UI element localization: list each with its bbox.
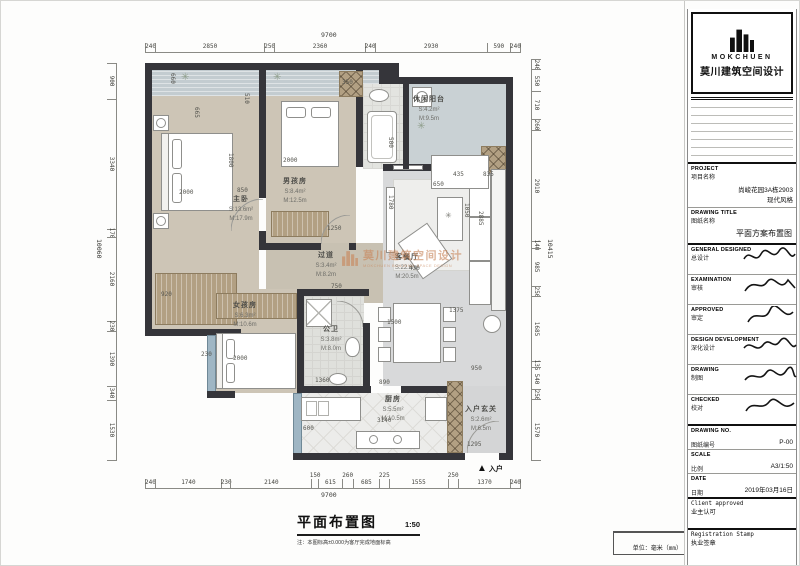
signature — [740, 366, 798, 386]
dim-chain-top: 240 2850 250 2360 240 2930 590 240 — [145, 43, 521, 53]
ruled-lines — [691, 97, 793, 162]
date-section: DATE 日期 2019年03月16日 — [688, 473, 796, 497]
dim-label: 2000 — [179, 189, 193, 196]
logo-building-icon — [727, 28, 757, 52]
pillow — [226, 363, 235, 383]
dim-label: 950 — [471, 365, 482, 372]
dim-label: 650 — [433, 181, 444, 188]
room-label-leisure-balcony: 休闲阳台 S:4.2m² M:9.5m — [405, 95, 453, 124]
dining-chair — [443, 347, 456, 362]
dim-label: 1800 — [227, 153, 234, 167]
dim-chain-left: 900 3340 170 2160 230 1390 340 1530 — [107, 63, 117, 461]
dining-chair — [378, 327, 391, 342]
signature — [740, 246, 798, 266]
wall — [379, 63, 399, 84]
dim-label: 510 — [243, 93, 250, 104]
pillow — [172, 173, 182, 203]
wall — [145, 63, 397, 70]
kitchen-island — [356, 431, 420, 449]
dim-label: 890 — [379, 379, 390, 386]
dim-chain-right: 240 550 710 260 2910 140 985 250 1685 13… — [531, 59, 541, 461]
door-arc — [337, 301, 363, 327]
watermark: 莫川建筑空间设计 MOKCHUEN BUILDING SPACE DESIGN — [341, 247, 463, 268]
sign-row-general-designed: GENERAL DESIGNED 总设计 — [688, 243, 796, 274]
plan-note: 注：本图标高±0.000为客厅完成地面标高 — [297, 539, 420, 546]
signature — [740, 276, 798, 296]
logo-text-zh: 莫川建筑空间设计 — [700, 63, 784, 78]
dim-label: 1500 — [387, 319, 401, 326]
units-box: 单位：毫米（mm） — [613, 531, 685, 555]
project-section: PROJECT 项目名称 尚峻花园3A栋2903 现代风格 — [688, 162, 796, 207]
room-label-boy: 男孩房 S:8.4m² M:12.5m — [271, 177, 319, 206]
wall — [207, 391, 235, 398]
watermark-text-zh: 莫川建筑空间设计 — [363, 247, 463, 263]
room-label-entry-foyer: 入户玄关 S:2.6m² M:6.5m — [457, 405, 505, 434]
kitchen-sink — [318, 401, 329, 416]
table-plant-icon: ✳ — [445, 211, 452, 220]
room-label-master: 主卧 S:13.6m² M:17.9m — [217, 195, 265, 224]
shower — [306, 299, 332, 327]
sofa-seat — [469, 261, 491, 305]
wall — [297, 289, 304, 393]
dim-label: 350 — [342, 79, 353, 86]
washbasin — [369, 89, 389, 102]
signature — [740, 336, 798, 356]
watermark-logo-icon — [341, 250, 359, 266]
dim-label: 1050 — [463, 203, 470, 217]
drawing-sheet: ✳ ✳ ✳ ✳ — [0, 0, 800, 566]
drawing-title-value: 平面方案布置图 — [691, 225, 793, 240]
dim-label: 1250 — [327, 225, 341, 232]
dining-table — [393, 303, 441, 363]
dim-label: 500 — [387, 137, 394, 148]
dim-total-top: 9700 — [321, 31, 337, 39]
drawing-footer-title: 平面布置图 1:50 注：本图标高±0.000为客厅完成地面标高 — [297, 512, 420, 546]
wall — [297, 289, 369, 296]
bed-headboard — [161, 133, 169, 211]
scale-value: A3/1:50 — [771, 463, 793, 470]
wall — [297, 386, 371, 393]
sign-row-approved: APPROVED 审定 — [688, 304, 796, 334]
arrow-up-icon: ▲ — [477, 464, 487, 474]
kitchen-sink — [306, 401, 317, 416]
sign-row-drawing: DRAWING 制图 — [688, 364, 796, 394]
drawing-no-value: P-00 — [779, 439, 793, 446]
sofa-back — [491, 169, 506, 311]
drawing-no-section: DRAWING NO. 图纸编号 P-00 — [688, 424, 796, 449]
title-block: MOKCHUEN 莫川建筑空间设计 PROJECT 项目名称 尚峻花园3A栋29… — [687, 9, 797, 566]
dim-label: 1375 — [449, 307, 463, 314]
registration-stamp-section: Registration Stamp 执业签章 — [688, 528, 796, 566]
dim-label: 750 — [331, 283, 342, 290]
logo-text-en: MOKCHUEN — [711, 54, 772, 61]
side-table — [483, 315, 501, 333]
client-approved-section: Client approved 业主认可 — [688, 497, 796, 528]
dim-label: 835 — [483, 171, 494, 178]
date-value: 2019年03月16日 — [745, 484, 793, 494]
wall — [145, 63, 152, 336]
sign-row-examination: EXAMINATION 审核 — [688, 274, 796, 304]
dining-chair — [443, 327, 456, 342]
entry-label: 入户 — [489, 464, 503, 474]
fridge — [425, 397, 447, 421]
pillow — [286, 107, 306, 118]
lamp-icon — [156, 118, 166, 128]
dim-label: 1360 — [315, 377, 329, 384]
plan-scale: 1:50 — [405, 520, 420, 529]
wall — [293, 453, 465, 460]
bed-headboard — [216, 333, 223, 389]
drawing-title-section: DRAWING TITLE 图纸名称 平面方案布置图 — [688, 207, 796, 243]
pillow — [311, 107, 331, 118]
dim-label: 850 — [237, 187, 248, 194]
sign-row-checked: CHECKED 校对 — [688, 394, 796, 424]
sign-row-design-development: DESIGN DEVELOPMENT 深化设计 — [688, 334, 796, 364]
dim-label: 1780 — [387, 195, 394, 209]
lamp-icon — [156, 216, 166, 226]
dim-total-bottom: 9700 — [321, 491, 337, 499]
washbasin — [329, 373, 347, 385]
dim-label: 1295 — [467, 441, 481, 448]
signature — [740, 396, 798, 416]
entry-arrow: ▲ 入户 — [477, 464, 503, 474]
stove-burner — [369, 435, 378, 444]
wall — [259, 243, 321, 250]
dim-total-left: 10060 — [95, 239, 103, 259]
dim-total-right: 10415 — [546, 239, 554, 259]
watermark-text-en: MOKCHUEN BUILDING SPACE DESIGN — [363, 263, 463, 268]
dim-label: 230 — [201, 351, 212, 358]
dim-label: 2000 — [233, 355, 247, 362]
wall — [506, 77, 513, 460]
dim-label: 600 — [303, 425, 314, 432]
wall — [259, 68, 266, 198]
divider — [684, 1, 685, 566]
dim-label: 3140 — [377, 417, 391, 424]
plant-icon: ✳ — [181, 72, 189, 83]
dim-label: 920 — [161, 291, 172, 298]
signature — [740, 306, 798, 326]
dim-chain-bottom: 240 1740 230 2140 150 615 260 685 225 15… — [145, 479, 521, 489]
project-name: 尚峻花园3A栋2903 — [691, 184, 793, 194]
dining-chair — [378, 347, 391, 362]
dim-label: 435 — [453, 171, 464, 178]
company-logo: MOKCHUEN 莫川建筑空间设计 — [691, 12, 793, 94]
dim-label: 660 — [169, 73, 176, 84]
stove-burner — [393, 435, 402, 444]
dim-label: 665 — [193, 107, 200, 118]
plant-icon: ✳ — [273, 72, 281, 83]
pillow — [172, 139, 182, 169]
window — [207, 335, 216, 395]
plan-title: 平面布置图 — [297, 512, 377, 532]
wall — [363, 323, 370, 393]
dim-label: 2000 — [283, 157, 297, 164]
project-style: 现代风格 — [691, 194, 793, 204]
dim-label: 2885 — [477, 211, 484, 225]
units-label: 单位：毫米（mm） — [633, 543, 682, 552]
room-label-corridor: 过道 S:3.4m² M:8.2m — [307, 251, 345, 280]
room-label-bathroom: 公卫 S:3.8m² M:8.0m — [311, 325, 351, 354]
scale-section: SCALE 比例 A3/1:50 — [688, 449, 796, 473]
room-label-girl: 女孩房 S:6.3m² M:10.6m — [221, 301, 269, 330]
